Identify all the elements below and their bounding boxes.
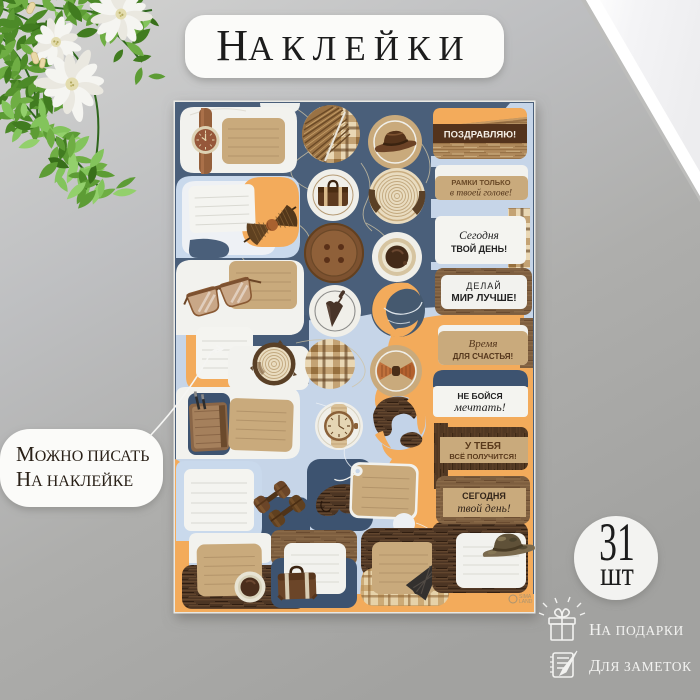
svg-text:ТВОЙ ДЕНЬ!: ТВОЙ ДЕНЬ! (451, 243, 507, 254)
svg-text:ДЛЯ ЗАМЕТОК: ДЛЯ ЗАМЕТОК (589, 656, 692, 675)
svg-text:ДЛЯ СЧАСТЬЯ!: ДЛЯ СЧАСТЬЯ! (453, 352, 513, 361)
svg-text:твой день!: твой день! (457, 502, 511, 515)
svg-text:РАМКИ ТОЛЬКО: РАМКИ ТОЛЬКО (451, 178, 510, 187)
svg-text:МИР ЛУЧШЕ!: МИР ЛУЧШЕ! (451, 293, 516, 304)
svg-text:ДЕЛАЙ: ДЕЛАЙ (466, 280, 501, 291)
svg-text:СЕГОДНЯ: СЕГОДНЯ (462, 491, 506, 501)
svg-text:мечтать!: мечтать! (453, 400, 506, 414)
svg-text:Время: Время (469, 338, 498, 350)
svg-text:шт: шт (600, 554, 634, 592)
svg-text:ВСЁ ПОЛУЧИТСЯ!: ВСЁ ПОЛУЧИТСЯ! (449, 452, 516, 461)
svg-text:LAND: LAND (519, 599, 533, 605)
svg-text:НАКЛЕЙКИ: НАКЛЕЙКИ (216, 21, 471, 70)
svg-text:НА ПОДАРКИ: НА ПОДАРКИ (589, 620, 684, 639)
svg-text:ПОЗДРАВЛЯЮ!: ПОЗДРАВЛЯЮ! (444, 130, 516, 141)
svg-text:У ТЕБЯ: У ТЕБЯ (465, 441, 501, 452)
svg-text:Сегодня: Сегодня (459, 230, 499, 242)
svg-text:в твоей голове!: в твоей голове! (450, 188, 512, 199)
